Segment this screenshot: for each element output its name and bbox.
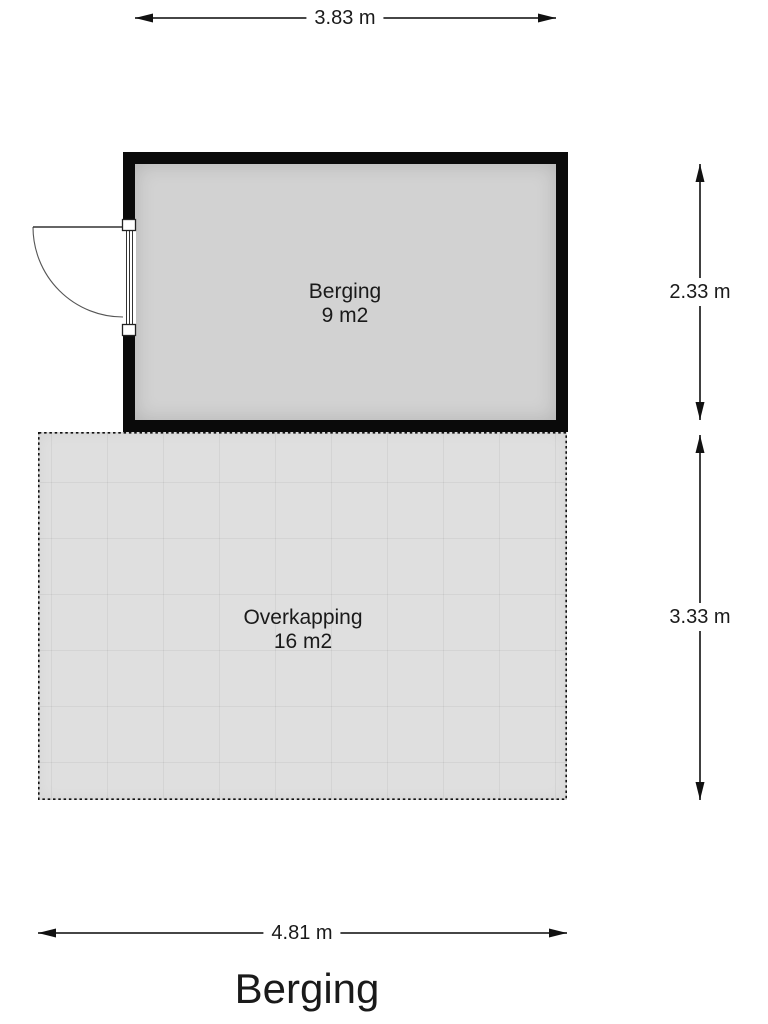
area-overkapping-area: 16 m2	[153, 630, 453, 654]
dimension-label-top: 3.83 m	[306, 4, 383, 32]
door-swing-icon	[33, 219, 136, 336]
room-berging-label: Berging 9 m2	[195, 280, 495, 328]
plan-title: Berging	[107, 967, 507, 1011]
dimension-label-right-upper: 2.33 m	[661, 278, 738, 306]
floorplan-canvas: Berging 9 m2 Overkapping 16 m2 3.83 m 2.…	[0, 0, 768, 1024]
dimension-label-right-lower: 3.33 m	[661, 603, 738, 631]
area-overkapping-label: Overkapping 16 m2	[153, 606, 453, 654]
area-overkapping-name: Overkapping	[243, 606, 362, 629]
room-berging-name: Berging	[309, 280, 381, 303]
room-berging-area: 9 m2	[195, 304, 495, 328]
dimension-label-bottom: 4.81 m	[263, 919, 340, 947]
